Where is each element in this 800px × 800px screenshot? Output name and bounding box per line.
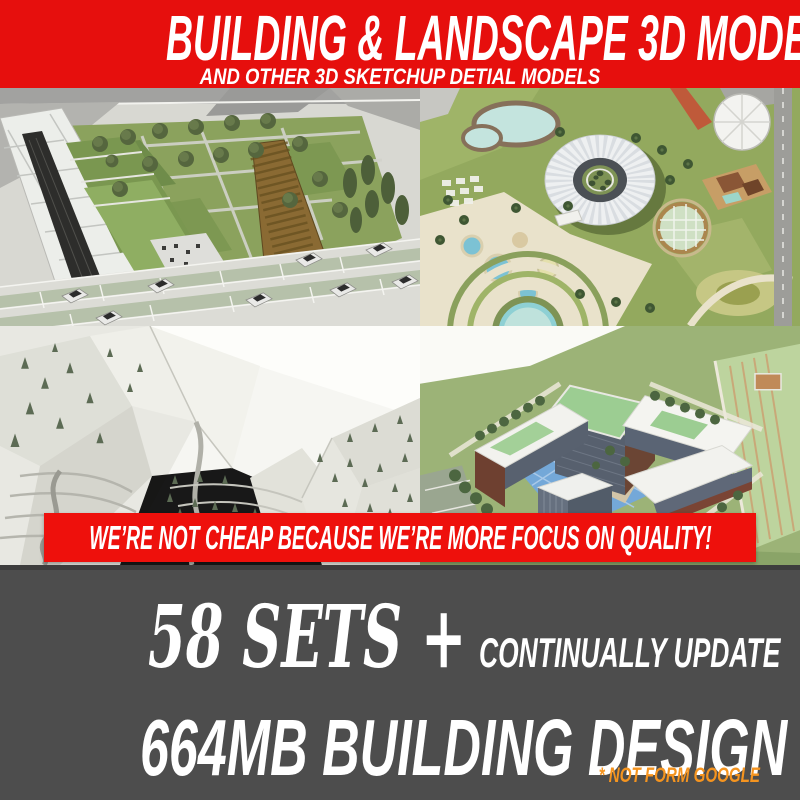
quality-banner-text: WE’RE NOT CHEAP BECAUSE WE’RE MORE FOCUS… — [89, 519, 711, 557]
sets-line: 58 SETS +CONTINUALLY UPDATE — [148, 595, 652, 706]
sets-count: 58 SETS + — [148, 587, 466, 688]
header-banner: BUILDING & LANDSCAPE 3D MODELS AND OTHER… — [0, 0, 800, 88]
model-preview-grid — [0, 88, 800, 565]
park-plaza-aerial-image — [0, 88, 420, 326]
size-line: 664MB BUILDING DESIGN — [140, 706, 660, 790]
poster-title: BUILDING & LANDSCAPE 3D MODELS — [166, 8, 634, 68]
quality-banner: WE’RE NOT CHEAP BECAUSE WE’RE MORE FOCUS… — [44, 513, 756, 562]
product-poster: BUILDING & LANDSCAPE 3D MODELS AND OTHER… — [0, 0, 800, 800]
ring-building — [545, 135, 655, 225]
update-note: CONTINUALLY UPDATE — [479, 629, 780, 676]
glass-pavilion — [654, 200, 710, 256]
footnote: * NOT FORM GOOGLE — [599, 764, 760, 788]
dome-tent — [714, 94, 770, 150]
resort-park-aerial-image — [420, 88, 800, 326]
preview-cell-park-plaza — [0, 88, 420, 326]
footer: 58 SETS +CONTINUALLY UPDATE 664MB BUILDI… — [0, 565, 800, 800]
preview-cell-resort-park — [420, 88, 800, 326]
poster-subtitle: AND OTHER 3D SKETCHUP DETIAL MODELS — [64, 66, 736, 88]
